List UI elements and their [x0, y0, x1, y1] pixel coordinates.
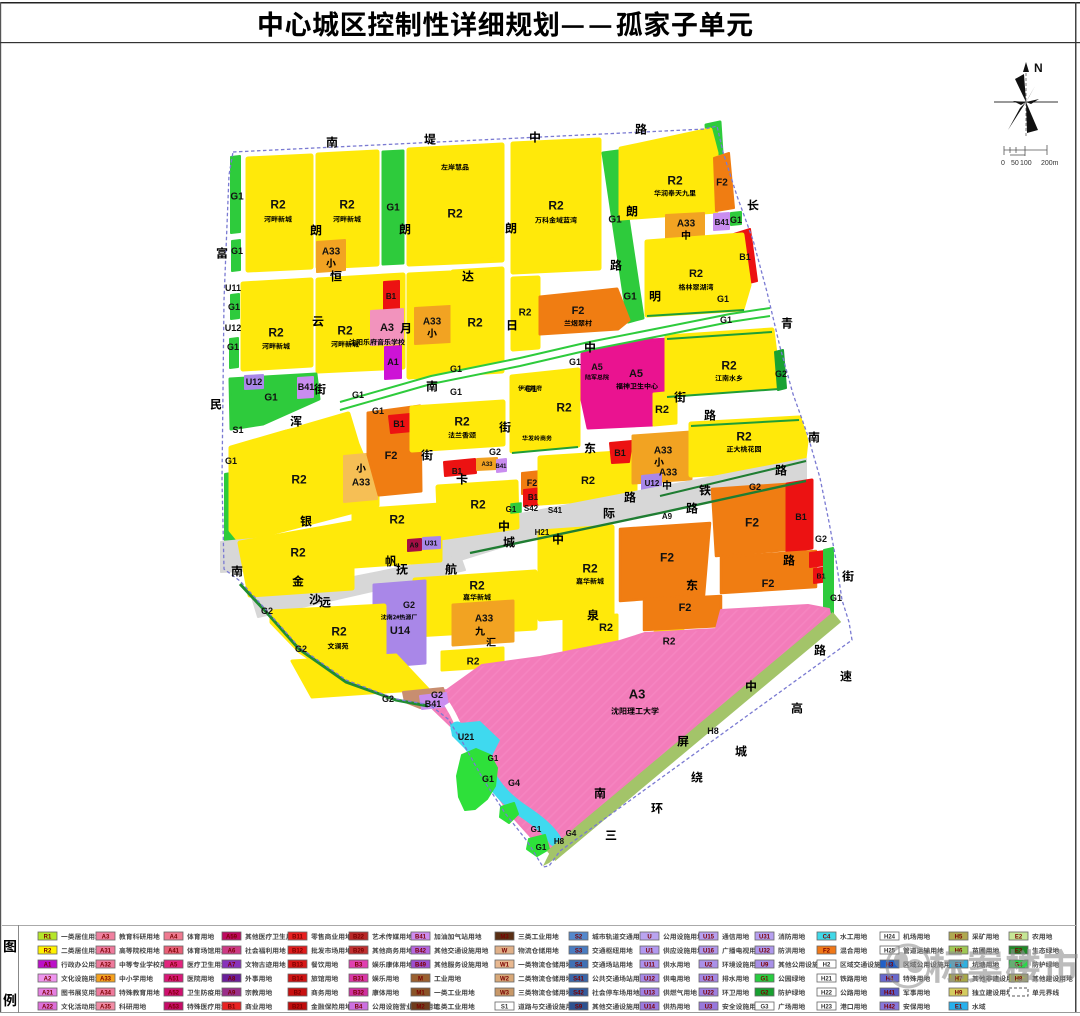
svg-text:R2: R2	[290, 545, 306, 559]
svg-text:A8: A8	[228, 977, 236, 983]
svg-text:A35: A35	[100, 1005, 112, 1011]
svg-text:R2: R2	[337, 323, 353, 337]
svg-text:H24: H24	[884, 935, 896, 941]
svg-text:R2: R2	[663, 637, 676, 648]
svg-text:G4: G4	[508, 778, 520, 788]
svg-text:F2: F2	[385, 450, 398, 462]
svg-text:U9: U9	[761, 963, 769, 969]
svg-text:G1: G1	[372, 406, 384, 416]
svg-text:G1: G1	[730, 215, 742, 225]
svg-text:G2: G2	[489, 447, 501, 457]
svg-text:F2: F2	[716, 178, 728, 189]
svg-text:B22: B22	[353, 935, 365, 941]
svg-text:G2: G2	[815, 534, 827, 544]
svg-text:50: 50	[1011, 160, 1019, 167]
svg-text:A21: A21	[42, 991, 54, 997]
svg-text:F2: F2	[823, 949, 831, 955]
svg-text:A1: A1	[44, 963, 52, 969]
svg-text:B31: B31	[353, 977, 365, 983]
svg-text:H21: H21	[821, 977, 833, 983]
svg-text:E1: E1	[955, 1005, 963, 1011]
svg-text:R2: R2	[454, 414, 470, 428]
svg-text:100: 100	[1020, 160, 1032, 167]
svg-text:F2: F2	[679, 602, 692, 614]
svg-text:R2: R2	[339, 197, 355, 211]
svg-text:G1: G1	[720, 315, 732, 325]
svg-text:B11: B11	[292, 935, 303, 941]
svg-text:G1: G1	[760, 977, 769, 983]
svg-text:G1: G1	[386, 203, 400, 214]
svg-text:B13: B13	[292, 963, 304, 969]
svg-text:G1: G1	[569, 357, 581, 367]
svg-text:N: N	[1034, 61, 1043, 75]
svg-text:H23: H23	[821, 1005, 833, 1011]
svg-text:A51: A51	[168, 977, 180, 983]
svg-text:H2: H2	[823, 963, 831, 969]
svg-text:A33: A33	[659, 468, 678, 479]
svg-text:R2: R2	[556, 400, 572, 414]
svg-text:A3: A3	[629, 687, 646, 702]
svg-text:0: 0	[1001, 160, 1005, 167]
svg-text:F2: F2	[762, 578, 775, 590]
svg-text:R2: R2	[519, 308, 532, 319]
svg-text:A22: A22	[42, 1005, 54, 1011]
svg-text:H8: H8	[554, 837, 565, 846]
svg-text:U: U	[647, 935, 651, 941]
svg-text:G1: G1	[231, 246, 243, 256]
svg-text:H22: H22	[821, 991, 833, 997]
svg-text:C4: C4	[823, 935, 831, 941]
svg-text:A2: A2	[44, 977, 52, 983]
svg-text:B29: B29	[353, 949, 365, 955]
svg-text:R2: R2	[389, 512, 405, 526]
svg-text:U13: U13	[644, 991, 656, 997]
svg-text:B42: B42	[415, 949, 427, 955]
svg-text:A52: A52	[168, 991, 180, 997]
svg-text:M2: M2	[416, 1005, 425, 1011]
svg-text:B41: B41	[495, 464, 507, 470]
svg-text:B41: B41	[425, 699, 442, 709]
svg-text:M: M	[418, 977, 423, 983]
svg-text:G1: G1	[482, 774, 494, 784]
svg-text:U32: U32	[759, 949, 771, 955]
svg-text:A3: A3	[102, 935, 110, 941]
svg-text:G1: G1	[536, 843, 547, 852]
svg-text:S42: S42	[524, 504, 539, 513]
svg-text:R2: R2	[270, 197, 286, 211]
svg-text:B1: B1	[739, 252, 751, 262]
svg-text:U31: U31	[759, 935, 771, 941]
svg-text:A33: A33	[100, 977, 112, 983]
svg-text:B41: B41	[298, 382, 315, 392]
svg-text:R2: R2	[291, 472, 307, 486]
svg-text:F2: F2	[572, 305, 585, 317]
svg-text:G2: G2	[760, 991, 769, 997]
svg-text:M3: M3	[500, 935, 509, 941]
svg-text:U15: U15	[703, 935, 715, 941]
svg-text:B1: B1	[452, 467, 463, 476]
svg-text:F2: F2	[745, 515, 759, 529]
svg-text:U14: U14	[644, 1005, 656, 1011]
svg-text:S1: S1	[501, 1005, 509, 1011]
svg-text:U22: U22	[703, 991, 715, 997]
svg-text:W3: W3	[500, 991, 510, 997]
svg-text:B2: B2	[294, 991, 302, 997]
svg-text:R2: R2	[467, 657, 480, 668]
svg-text:G1: G1	[228, 302, 240, 312]
svg-text:G1: G1	[450, 387, 462, 397]
svg-text:G1: G1	[623, 292, 637, 303]
svg-text:S9: S9	[575, 1005, 583, 1011]
svg-text:W1: W1	[500, 963, 510, 969]
svg-text:U31: U31	[425, 541, 438, 548]
svg-text:M1: M1	[416, 991, 425, 997]
svg-text:G1: G1	[608, 215, 622, 226]
svg-text:B1: B1	[386, 292, 397, 301]
svg-text:U3: U3	[705, 1005, 713, 1011]
svg-text:R2: R2	[581, 475, 595, 487]
svg-text:G2: G2	[749, 482, 761, 492]
svg-text:A31: A31	[100, 949, 112, 955]
svg-text:W2: W2	[500, 977, 510, 983]
svg-text:U16: U16	[703, 949, 715, 955]
svg-text:G1: G1	[352, 390, 364, 400]
svg-text:R2: R2	[469, 578, 485, 592]
svg-text:A5: A5	[629, 368, 643, 380]
svg-text:S2: S2	[575, 935, 583, 941]
svg-text:R2: R2	[667, 173, 683, 187]
svg-text:U21: U21	[458, 732, 475, 742]
svg-text:B14: B14	[292, 977, 304, 983]
svg-text:200m: 200m	[1041, 160, 1059, 167]
svg-text:B4: B4	[355, 1005, 363, 1011]
svg-text:R2: R2	[331, 624, 347, 638]
svg-text:A59: A59	[226, 935, 238, 941]
svg-text:A33: A33	[352, 478, 371, 489]
svg-text:R2: R2	[582, 561, 598, 575]
svg-text:G1: G1	[717, 294, 729, 304]
svg-text:B32: B32	[353, 991, 365, 997]
svg-text:G1: G1	[450, 364, 462, 374]
svg-text:B1: B1	[795, 512, 807, 522]
svg-text:R2: R2	[470, 497, 486, 511]
svg-text:B41: B41	[715, 218, 730, 227]
svg-text:R2: R2	[689, 268, 703, 280]
svg-text:E2: E2	[1015, 935, 1023, 941]
svg-text:G1: G1	[227, 342, 239, 352]
svg-text:S4: S4	[575, 963, 583, 969]
svg-text:R2: R2	[548, 198, 564, 212]
svg-text:H9: H9	[955, 991, 963, 997]
svg-text:U21: U21	[703, 977, 715, 983]
svg-text:G2: G2	[382, 694, 394, 704]
svg-text:R2: R2	[599, 622, 613, 634]
svg-text:B1: B1	[228, 1005, 236, 1011]
svg-text:A6: A6	[228, 949, 236, 955]
svg-text:A7: A7	[228, 963, 236, 969]
svg-text:R2: R2	[447, 206, 463, 220]
svg-text:S41: S41	[548, 506, 563, 515]
svg-text:U12: U12	[246, 377, 263, 387]
svg-text:B12: B12	[292, 949, 304, 955]
svg-text:A33: A33	[677, 219, 696, 230]
svg-text:G1: G1	[488, 754, 499, 763]
svg-text:B1: B1	[817, 574, 826, 581]
svg-text:H41: H41	[884, 991, 896, 997]
svg-text:G1: G1	[531, 825, 542, 834]
svg-text:B1: B1	[614, 448, 626, 458]
svg-text:S41: S41	[573, 977, 584, 983]
svg-text:R1: R1	[44, 935, 52, 941]
svg-text:U14: U14	[390, 625, 411, 637]
svg-text:R2: R2	[721, 358, 737, 372]
svg-text:A34: A34	[100, 991, 112, 997]
svg-text:R2: R2	[44, 949, 52, 955]
svg-text:A1: A1	[387, 357, 399, 367]
svg-text:U2: U2	[705, 963, 713, 969]
svg-text:A53: A53	[168, 1005, 180, 1011]
svg-text:H5: H5	[955, 935, 963, 941]
svg-text:G3: G3	[760, 1005, 769, 1011]
svg-text:S1: S1	[232, 425, 243, 435]
svg-text:G2: G2	[775, 369, 787, 379]
svg-text:U12: U12	[645, 479, 660, 488]
svg-text:A9: A9	[410, 543, 419, 550]
svg-text:A33: A33	[475, 614, 494, 625]
svg-text:G4: G4	[566, 829, 577, 838]
svg-text:G1: G1	[506, 505, 517, 514]
svg-text:B21: B21	[292, 1005, 304, 1011]
svg-text:R2: R2	[736, 429, 752, 443]
svg-text:F2: F2	[527, 478, 538, 488]
svg-text:U11: U11	[644, 963, 655, 969]
svg-text:R2: R2	[655, 404, 669, 416]
svg-text:B41: B41	[415, 935, 427, 941]
svg-text:B3: B3	[355, 963, 363, 969]
svg-text:G2: G2	[261, 606, 273, 616]
svg-text:A4: A4	[170, 935, 178, 941]
svg-text:G2: G2	[295, 644, 307, 654]
svg-text:G1: G1	[830, 593, 842, 603]
svg-text:R2: R2	[268, 325, 284, 339]
svg-text:W: W	[502, 949, 508, 955]
svg-text:U12: U12	[644, 977, 656, 983]
svg-text:A3: A3	[380, 322, 394, 334]
svg-text:G1: G1	[264, 393, 278, 404]
svg-text:G1: G1	[230, 192, 244, 203]
svg-text:G2: G2	[403, 600, 415, 610]
svg-text:A33: A33	[654, 446, 673, 457]
svg-text:G1: G1	[225, 456, 237, 466]
svg-text:R2: R2	[467, 315, 483, 329]
svg-text:B49: B49	[415, 963, 427, 969]
svg-text:A33: A33	[322, 247, 341, 258]
svg-text:B1: B1	[528, 493, 539, 502]
svg-text:S3: S3	[575, 949, 583, 955]
svg-text:H21: H21	[535, 528, 550, 537]
svg-text:S42: S42	[573, 991, 584, 997]
svg-text:B1: B1	[393, 419, 405, 429]
svg-text:A33: A33	[423, 317, 442, 328]
svg-text:A9: A9	[228, 991, 236, 997]
svg-text:A32: A32	[100, 963, 112, 969]
svg-text:A9: A9	[662, 512, 673, 521]
svg-text:A41: A41	[168, 949, 180, 955]
svg-text:H8: H8	[707, 726, 719, 736]
svg-text:A5: A5	[170, 963, 178, 969]
svg-text:H42: H42	[884, 1005, 896, 1011]
svg-text:A5: A5	[591, 362, 603, 372]
svg-text:U11: U11	[225, 283, 241, 293]
svg-text:U12: U12	[225, 323, 242, 333]
svg-text:A33: A33	[481, 462, 493, 468]
svg-text:F2: F2	[660, 550, 674, 564]
svg-text:U1: U1	[646, 949, 654, 955]
